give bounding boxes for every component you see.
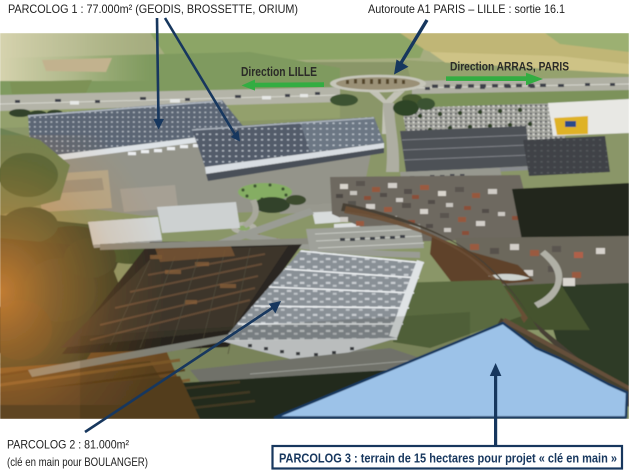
svg-text:(clé en main pour BOULANGER): (clé en main pour BOULANGER)	[7, 455, 148, 469]
svg-text:Direction ARRAS, PARIS: Direction ARRAS, PARIS	[450, 60, 569, 74]
svg-text:Direction LILLE: Direction LILLE	[241, 65, 317, 79]
svg-text:PARCOLOG 2 : 81.000m²: PARCOLOG 2 : 81.000m²	[7, 438, 129, 452]
svg-text:PARCOLOG 1 : 77.000m² (GEODIS,: PARCOLOG 1 : 77.000m² (GEODIS, BROSSETTE…	[8, 2, 298, 16]
svg-text:PARCOLOG 3 : terrain de 15 he: PARCOLOG 3 : terrain de 15 hectares pour…	[279, 451, 617, 466]
svg-text:Autoroute A1 PARIS – LILLE : s: Autoroute A1 PARIS – LILLE : sortie 16.1	[368, 2, 565, 16]
